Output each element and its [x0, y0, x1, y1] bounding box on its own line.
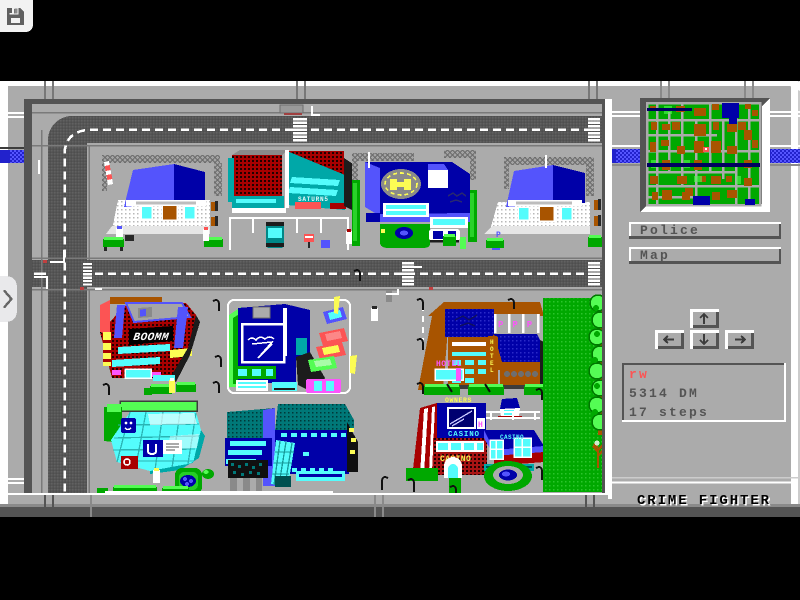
svg-text:O: O	[490, 346, 494, 353]
svg-text:CRIME FIGHTER: CRIME FIGHTER	[637, 493, 771, 509]
svg-text:P: P	[496, 231, 501, 240]
svg-text:PPP: PPP	[498, 320, 541, 330]
svg-text:OWNERS: OWNERS	[445, 397, 472, 404]
svg-text:5314 DM: 5314 DM	[629, 386, 699, 401]
svg-text:SATURN5: SATURN5	[298, 196, 329, 203]
svg-text:Map: Map	[640, 248, 670, 263]
svg-text:17 steps: 17 steps	[629, 405, 709, 420]
svg-text:CASINO: CASINO	[448, 431, 480, 439]
svg-text:rw: rw	[629, 367, 649, 382]
svg-text:BOOMM: BOOMM	[132, 332, 169, 344]
svg-text:HOTEL: HOTEL	[436, 360, 462, 369]
svg-text:CASINO: CASINO	[500, 434, 524, 441]
svg-text:H: H	[478, 421, 483, 430]
svg-text:H: H	[490, 339, 494, 346]
svg-text:L: L	[490, 367, 494, 374]
svg-text:E: E	[490, 360, 494, 367]
svg-text:T: T	[490, 353, 494, 360]
svg-text:Police: Police	[640, 223, 700, 238]
